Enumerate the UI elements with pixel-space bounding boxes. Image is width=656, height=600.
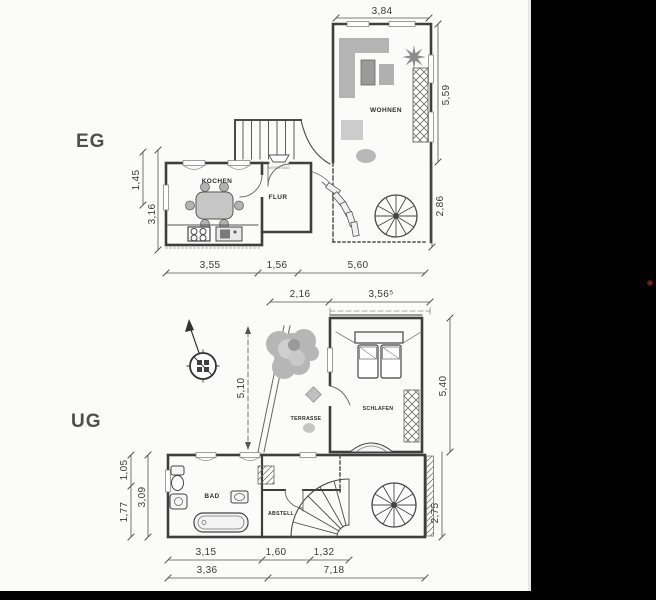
- dim-ug-r1: 5,40: [438, 376, 449, 397]
- entrance-door-mark: [269, 155, 289, 162]
- window: [347, 22, 369, 27]
- window: [328, 348, 333, 372]
- window: [240, 453, 260, 458]
- dim-eg-b2: 1,56: [267, 260, 288, 271]
- cabinet: [341, 120, 363, 140]
- window: [228, 161, 250, 166]
- dim-ug-l2: 1,77: [119, 502, 130, 523]
- dim-eg-right1: 5,59: [441, 85, 452, 106]
- terrasse-label: TERRASSE: [291, 416, 322, 422]
- window: [389, 22, 415, 27]
- window: [183, 161, 205, 166]
- dim-ug-l1: 1,05: [119, 460, 130, 481]
- dim-ug-b1: 3,15: [196, 547, 217, 558]
- paper-edge: [528, 0, 531, 591]
- dim-ug-t2: 3,56⁵: [368, 289, 393, 300]
- table: [361, 60, 375, 85]
- dim-ug-b2: 1,60: [266, 547, 287, 558]
- window: [164, 185, 169, 210]
- dim-ug-b3: 1,32: [314, 547, 335, 558]
- wohnen-label: WOHNEN: [370, 107, 402, 114]
- dim-eg-b1: 3,55: [200, 260, 221, 271]
- window: [300, 453, 316, 458]
- shaft-hatched: [258, 466, 274, 484]
- dining-table: [196, 192, 233, 219]
- abstell-label: ABSTELL: [268, 511, 295, 517]
- wardrobe-hatched: [404, 390, 419, 442]
- faucet: [234, 231, 237, 234]
- sofa: [339, 53, 355, 98]
- bad-label: BAD: [204, 493, 219, 500]
- dim-ug-l3: 3,09: [137, 487, 148, 508]
- dim-eg-top: 3,84: [372, 6, 393, 17]
- plant-icon: [402, 45, 426, 69]
- dim-ug-r2: 2,75: [430, 503, 441, 524]
- dim-ug-b4: 3,36: [197, 565, 218, 576]
- sofa: [339, 38, 389, 53]
- spiral-stair: [375, 195, 417, 237]
- deco-stone: [303, 423, 315, 433]
- red-dot-artifact: [647, 280, 653, 286]
- dim-ug-t1: 2,16: [290, 289, 311, 300]
- dim-eg-left1: 1,45: [131, 170, 142, 191]
- floorplan-drawing: EG WOHNEN: [0, 0, 656, 600]
- schlafen-label: SCHLAFEN: [363, 406, 394, 412]
- spiral-stair: [372, 483, 416, 527]
- door-gap: [328, 386, 333, 406]
- furniture-blob: [356, 149, 376, 163]
- kochen-label: KOCHEN: [202, 178, 233, 185]
- window: [429, 55, 434, 83]
- armchair: [379, 64, 394, 85]
- shelf-hatched: [413, 68, 428, 142]
- window: [196, 453, 216, 458]
- dim-eg-right2: 2,86: [435, 196, 446, 217]
- dim-eg-b3: 5,60: [348, 260, 369, 271]
- ug-floor-label: UG: [71, 411, 102, 432]
- dim-ug-b5: 7,18: [324, 565, 345, 576]
- flur-label: FLUR: [269, 194, 288, 201]
- window: [166, 470, 171, 492]
- dim-eg-left2: 3,16: [147, 204, 158, 225]
- dim-ug-terrace: 5,10: [236, 378, 247, 399]
- window: [429, 112, 434, 142]
- scanned-floorplan-page: EG WOHNEN: [0, 0, 656, 600]
- eg-floor-label: EG: [76, 131, 105, 152]
- sink-basin: [220, 230, 230, 239]
- windfang-label: WINDFANG: [268, 165, 290, 170]
